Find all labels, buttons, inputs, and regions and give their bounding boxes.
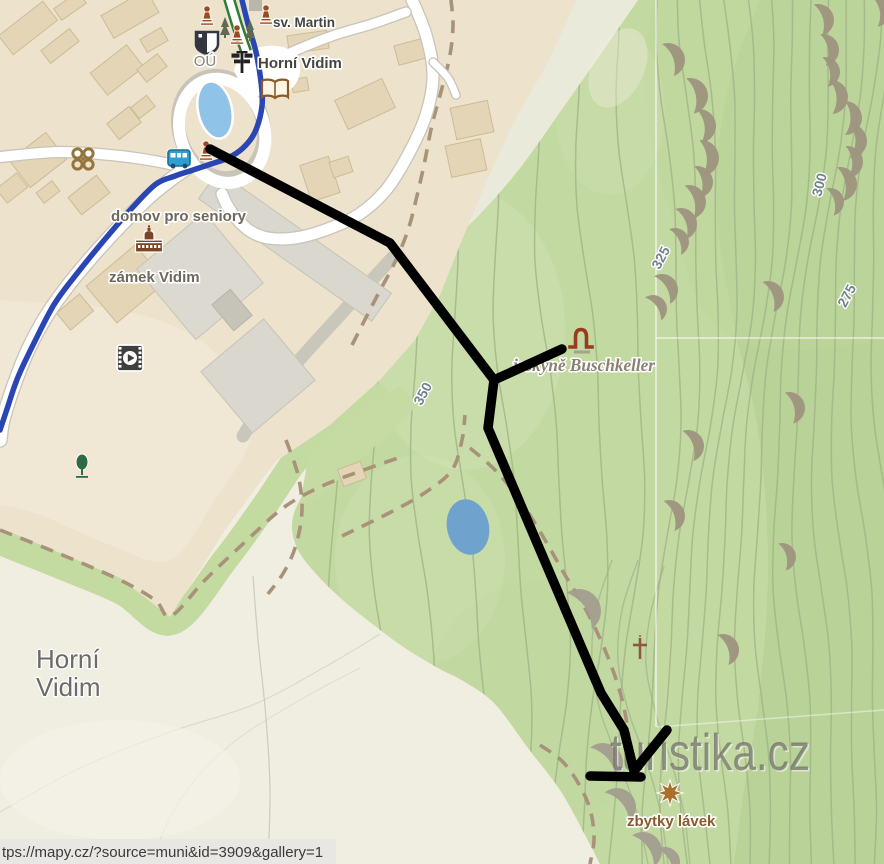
svg-text:domov pro seniory: domov pro seniory [111,208,247,225]
svg-text:tps://mapy.cz/?source=muni&id=: tps://mapy.cz/?source=muni&id=3909&galle… [2,844,323,861]
svg-text:Horní: Horní [36,644,100,674]
svg-text:zbytky lávek: zbytky lávek [627,813,716,830]
svg-text:sv. Martin: sv. Martin [273,15,335,30]
svg-text:zámek Vidim: zámek Vidim [109,269,200,286]
svg-text:Vidim: Vidim [36,672,101,702]
svg-text:Horní Vidim: Horní Vidim [258,55,342,72]
svg-text:OÚ: OÚ [194,53,217,70]
